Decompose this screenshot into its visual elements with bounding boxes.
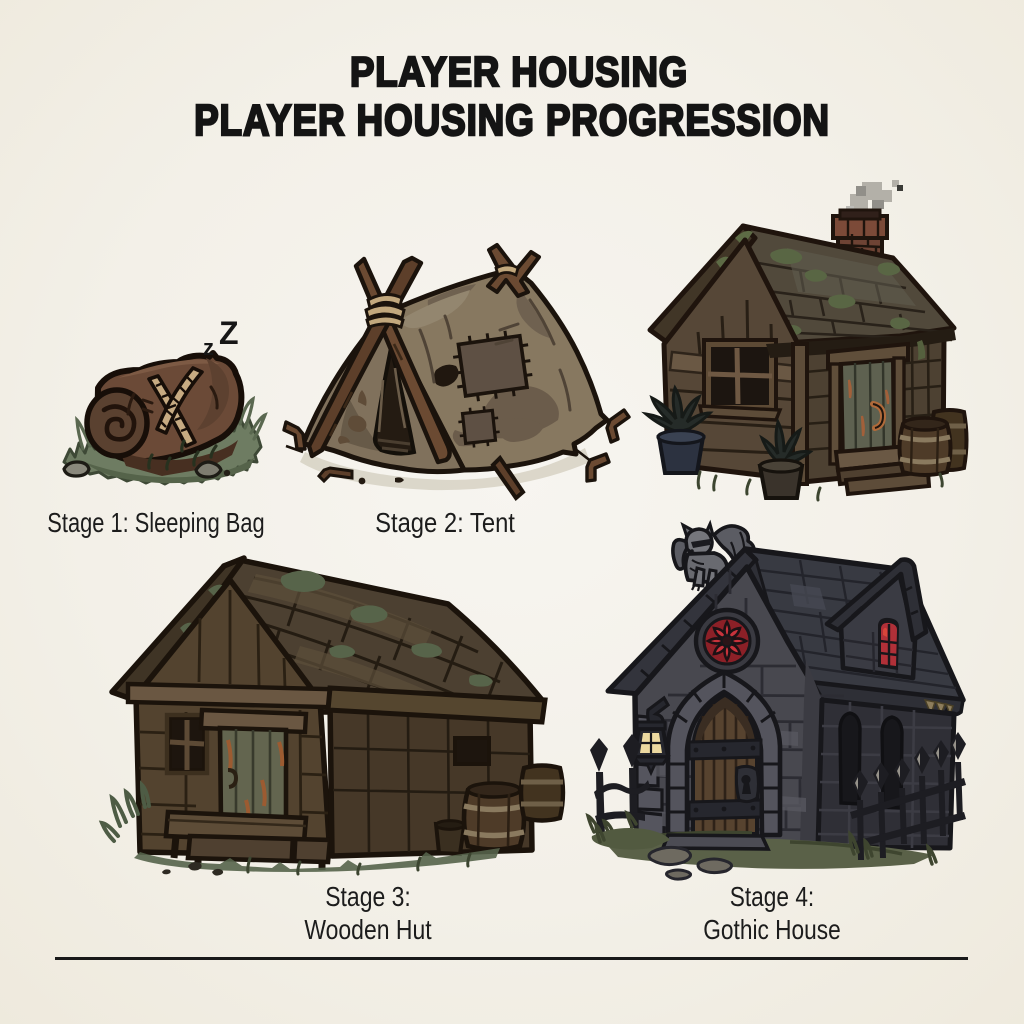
svg-text:z: z — [203, 335, 214, 360]
svg-text:Z: Z — [219, 315, 239, 351]
